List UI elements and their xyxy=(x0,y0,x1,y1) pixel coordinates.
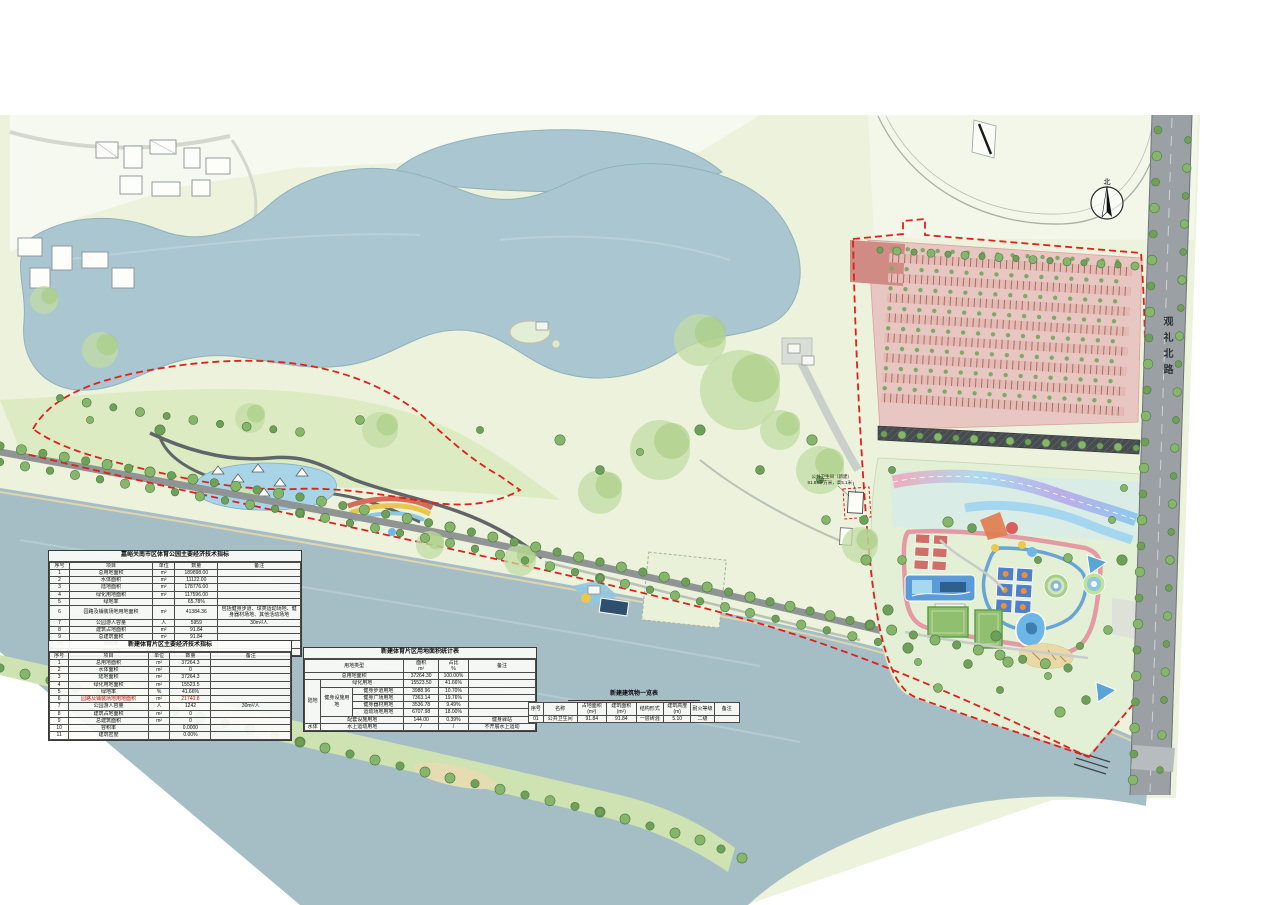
table-cell: 41.66% xyxy=(170,688,211,695)
table-cell: 包括健身步道、球类运动场地、健身器材场地、其他活动场地 xyxy=(218,606,301,620)
table-title: 新建体育片区主要经济技术指标 xyxy=(49,641,291,652)
table-cell: 二级 xyxy=(691,716,714,723)
table-cell: 水体面积 xyxy=(70,577,153,584)
table-cell: 人 xyxy=(152,619,175,626)
table-cell: 总用地面积 xyxy=(305,673,404,680)
table-cell: 0.39% xyxy=(438,716,468,723)
table-cell: 37264.3 xyxy=(170,674,211,681)
table-cell: 陆地 xyxy=(305,680,321,724)
table-cell xyxy=(218,584,301,591)
table-cell xyxy=(468,694,535,701)
table-cell xyxy=(152,598,175,605)
circle-lawn xyxy=(1044,574,1068,598)
table-cell: 01 xyxy=(529,716,544,723)
table-cell xyxy=(148,732,170,739)
table-cell: 序号 xyxy=(50,562,70,569)
table-cell: 11 xyxy=(50,732,69,739)
table-cell xyxy=(714,716,739,723)
table-cell xyxy=(211,674,291,681)
table-cell: 公园游人容量 xyxy=(70,619,153,626)
table-cell: m² xyxy=(152,569,175,576)
table-cell: 占比 % xyxy=(438,659,468,673)
table-cell: 人 xyxy=(148,703,170,710)
table-cell: 健身广场用地 xyxy=(353,694,404,701)
table-cell xyxy=(211,717,291,724)
table-title: 嘉峪关南市区体育公园主要经济技术指标 xyxy=(49,551,301,562)
table-cell: m² xyxy=(148,717,170,724)
table-cell: 4 xyxy=(50,591,70,598)
table-cell: 面积 m² xyxy=(404,659,439,673)
table-cell: 30m²/人 xyxy=(211,703,291,710)
table-cell: 5.10 xyxy=(664,716,691,723)
table-cell: 144.00 xyxy=(404,716,439,723)
road-name-label: 观礼北路 xyxy=(1159,316,1174,380)
table-cell xyxy=(468,680,535,687)
table-title: 新建体育片区用地面积统计表 xyxy=(304,648,536,659)
table-cell: 2 xyxy=(50,667,69,674)
table-cell: 园路及铺装场地用地面积 xyxy=(70,606,153,620)
table-cell: 10 xyxy=(50,725,69,732)
table-cell: 水体 xyxy=(305,723,321,730)
table-cell: 9 xyxy=(50,717,69,724)
site-plan-map: 北 xyxy=(0,0,1280,905)
table-cell: 序号 xyxy=(529,702,544,716)
table-cell: 15523.50 xyxy=(404,680,439,687)
table-cell: 健身设施用地 xyxy=(321,687,353,716)
table-cell: 7363.14 xyxy=(404,694,439,701)
table-cell: 15523.5 xyxy=(170,681,211,688)
table-cell: 耐火等级 xyxy=(691,702,714,716)
table-cell: 0.00% xyxy=(170,732,211,739)
table-cell: 建筑占地面积 xyxy=(70,626,153,633)
table-cell: 单位 xyxy=(148,652,170,659)
table-cell: 0.0000 xyxy=(170,725,211,732)
table-cell: 园路及铺装场地用地面积 xyxy=(69,696,149,703)
table-cell: 0 xyxy=(170,667,211,674)
table-cell: 一层砖混 xyxy=(636,716,663,723)
table-cell: 单位 xyxy=(152,562,175,569)
table-cell: 7 xyxy=(50,619,70,626)
table-cell: 总用地面积 xyxy=(69,659,149,666)
table-cell xyxy=(218,569,301,576)
table-cell: 健身器材用地 xyxy=(353,702,404,709)
table-cell: 总建筑面积 xyxy=(69,717,149,724)
annotation-line: 91.84平方米，高5.1米 xyxy=(792,480,852,486)
table-cell: 4 xyxy=(50,681,69,688)
table-cell: 结构形式 xyxy=(636,702,663,716)
table-cell: 91.84 xyxy=(607,716,637,723)
table-cell xyxy=(211,659,291,666)
table-cell: 绿化用地面积 xyxy=(69,681,149,688)
table-cell xyxy=(211,725,291,732)
table-cell: 建筑占地面积 xyxy=(69,710,149,717)
table-cell: 名称 xyxy=(543,702,577,716)
table-cell: 配套设施用地 xyxy=(321,716,404,723)
table-cell: m² xyxy=(152,591,175,598)
table-cell: 30m²/人 xyxy=(218,619,301,626)
table-cell: 建筑面积(m²) xyxy=(607,702,637,716)
table-cell: 陆地面积 xyxy=(70,584,153,591)
table-cell: 10.70% xyxy=(438,687,468,694)
table-cell: 项目 xyxy=(70,562,153,569)
table-cell: 健身步道用地 xyxy=(353,687,404,694)
table-cell: 1 xyxy=(50,569,70,576)
table-cell xyxy=(211,667,291,674)
table-cell: 3 xyxy=(50,584,70,591)
table-cell xyxy=(468,702,535,709)
table-cell: 2 xyxy=(50,577,70,584)
svg-text:北: 北 xyxy=(1104,178,1111,186)
table-cell: 备注 xyxy=(468,659,535,673)
table-cell: m² xyxy=(148,710,170,717)
table-cell: 占地面积(m²) xyxy=(577,702,607,716)
table-cell: 65.78% xyxy=(175,598,218,605)
table-cell: 5959 xyxy=(175,619,218,626)
table-cell xyxy=(218,591,301,598)
table-cell: 容积率 xyxy=(69,725,149,732)
table-cell: 3536.78 xyxy=(404,702,439,709)
table-cell: m² xyxy=(148,681,170,688)
table-landuse-stats: 新建体育片区用地面积统计表用地类型面积 m²占比 %备注总用地面积37264.3… xyxy=(303,647,537,732)
table-cell: 18.00% xyxy=(438,709,468,716)
table-cell: 建筑密度 xyxy=(69,732,149,739)
table-cell: 0 xyxy=(170,710,211,717)
table-cell: 5 xyxy=(50,688,69,695)
flag-pole xyxy=(972,120,996,158)
site-plan-page: 北 嘉峪关南市区体育公园主要经济技术指标序号项目单位数量备注1总用地面积m²18… xyxy=(0,0,1280,905)
table-cell: 11122.00 xyxy=(175,577,218,584)
table-cell: 6 xyxy=(50,606,70,620)
table-cell: 6 xyxy=(50,696,69,703)
table-cell: 37264.3 xyxy=(170,659,211,666)
table-cell: 公共卫生间 xyxy=(543,716,577,723)
table-cell: m² xyxy=(152,577,175,584)
table-cell xyxy=(211,710,291,717)
toilet-annotation: 公共卫生间（新建） 91.84平方米，高5.1米 xyxy=(792,474,852,486)
table-title: 新建建筑物一览表 xyxy=(568,690,700,701)
table-cell xyxy=(468,709,535,716)
table-cell: 1 xyxy=(50,659,69,666)
table-cell: 健身驿站 xyxy=(468,716,535,723)
table-cell: 数量 xyxy=(175,562,218,569)
table-cell: % xyxy=(148,688,170,695)
table-cell: / xyxy=(438,723,468,730)
table-cell xyxy=(211,681,291,688)
table-cell: 绿化用地 xyxy=(321,680,404,687)
table-cell: 91.84 xyxy=(577,716,607,723)
table-cell xyxy=(211,688,291,695)
table-cell: 绿地率 xyxy=(69,688,149,695)
table-cell: 水上运动用地 xyxy=(321,723,404,730)
table-cell: 91.84 xyxy=(175,626,218,633)
table-cell xyxy=(218,598,301,605)
table-cell: 水体面积 xyxy=(69,667,149,674)
table-cell: 数量 xyxy=(170,652,211,659)
table-cell: m² xyxy=(148,659,170,666)
table-cell xyxy=(218,577,301,584)
table-cell xyxy=(218,626,301,633)
table-cell: m² xyxy=(148,696,170,703)
table-cell: m² xyxy=(152,606,175,620)
table-cell: 5 xyxy=(50,598,70,605)
table-cell xyxy=(468,687,535,694)
table-cell xyxy=(468,673,535,680)
table-new-buildings: 新建建筑物一览表序号名称占地面积(m²)建筑面积(m²)结构形式建筑高度(m)耐… xyxy=(528,690,740,723)
table-cell: 21740.8 xyxy=(170,696,211,703)
table-cell: 3 xyxy=(50,674,69,681)
table-cell: 19.76% xyxy=(438,694,468,701)
target-rings xyxy=(1083,573,1105,595)
table-cell: 117596.00 xyxy=(175,591,218,598)
table-cell xyxy=(211,732,291,739)
table-cell: 建筑高度(m) xyxy=(664,702,691,716)
table-cell: 189898.00 xyxy=(175,569,218,576)
table-cell: 3988.96 xyxy=(404,687,439,694)
table-cell: m² xyxy=(148,667,170,674)
table-cell: 41384.36 xyxy=(175,606,218,620)
table-cell: 9.49% xyxy=(438,702,468,709)
table-cell: 绿地率 xyxy=(70,598,153,605)
table-cell: 总用地面积 xyxy=(70,569,153,576)
table-cell: 1242 xyxy=(170,703,211,710)
table-cell: 不开展水上运动 xyxy=(468,723,535,730)
table-cell: 备注 xyxy=(714,702,739,716)
table-cell: 100.00% xyxy=(438,673,468,680)
table-cell: 项目 xyxy=(69,652,149,659)
table-cell: 备注 xyxy=(211,652,291,659)
table-cell: m² xyxy=(148,674,170,681)
table-cell xyxy=(148,725,170,732)
table-cell: 7 xyxy=(50,703,69,710)
table-cell xyxy=(211,696,291,703)
table-cell: 37264.30 xyxy=(404,673,439,680)
table-cell: 陆地面积 xyxy=(69,674,149,681)
table-cell: 0 xyxy=(170,717,211,724)
table-cell: 公园游人容量 xyxy=(69,703,149,710)
table-cell: 运动场地用地 xyxy=(353,709,404,716)
table-cell: / xyxy=(404,723,439,730)
table-cell: 8 xyxy=(50,710,69,717)
table-sports-indicators: 新建体育片区主要经济技术指标序号项目单位数量备注1总用地面积m²37264.32… xyxy=(48,640,292,741)
table-cell: 8 xyxy=(50,626,70,633)
table-cell: 绿化用地面积 xyxy=(70,591,153,598)
table-cell: 序号 xyxy=(50,652,69,659)
table-cell: m² xyxy=(152,626,175,633)
table-cell: 6707.98 xyxy=(404,709,439,716)
table-cell: 用地类型 xyxy=(305,659,404,673)
table-cell: 178776.00 xyxy=(175,584,218,591)
table-cell: 备注 xyxy=(218,562,301,569)
parking-area xyxy=(850,240,1142,454)
table-cell: m² xyxy=(152,584,175,591)
table-cell: 41.66% xyxy=(438,680,468,687)
